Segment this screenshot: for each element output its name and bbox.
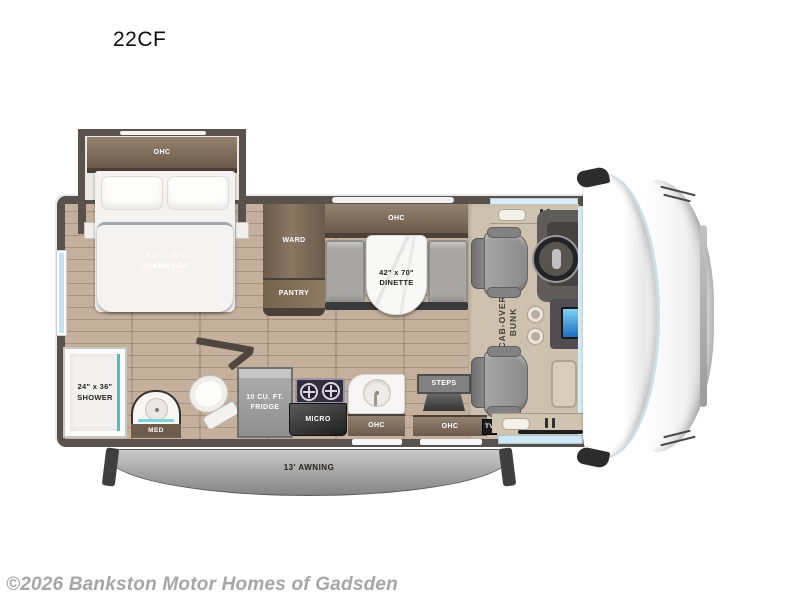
dinette-label: DINETTE <box>367 278 426 288</box>
microwave: MICRO <box>289 403 347 436</box>
dinette-bench-left <box>325 240 365 304</box>
microwave-label: MICRO <box>305 415 330 424</box>
steps-label: STEPS <box>432 379 457 388</box>
kitchen-ohc-label: OHC <box>368 421 385 430</box>
copyright-watermark: ©2026 Bankston Motor Homes of Gadsden <box>6 574 398 596</box>
driver-seat-armrest <box>487 227 521 238</box>
entry-door-handle <box>502 418 530 430</box>
bedroom-ohc-label: OHC <box>154 148 171 157</box>
kitchen-sink <box>363 379 391 407</box>
bath-sink <box>145 398 168 421</box>
wardrobe-label: WARD <box>283 236 306 245</box>
shower-glass-accent <box>117 354 120 431</box>
entry-door-vent <box>545 418 548 428</box>
pantry-toe-kick <box>263 308 325 316</box>
shower: 24" x 36" SHOWER <box>63 347 127 438</box>
fridge-size-label: 10 CU. FT. <box>246 393 283 402</box>
entry-door-trim <box>518 430 583 434</box>
cooktop <box>295 378 345 404</box>
cup-holder <box>528 307 543 322</box>
bedroom-overhead-cabinet: OHC <box>87 137 237 173</box>
driver-seat <box>471 232 528 293</box>
med-label: MED <box>148 427 164 435</box>
pantry-cabinet: PANTRY <box>263 280 325 308</box>
burner <box>300 383 318 401</box>
refrigerator: 10 CU. FT. FRIDGE <box>237 367 293 438</box>
entry-overhead-cabinet: OHC <box>413 415 487 436</box>
passenger-seat-cushion <box>484 351 528 414</box>
driver-door-handle <box>498 209 526 221</box>
awning-label: 13' AWNING <box>284 463 335 474</box>
cup-holder <box>528 329 543 344</box>
cab-over-label-line1: CAB-OVER <box>497 295 508 348</box>
entry-steps: STEPS <box>417 374 471 394</box>
queen-bed-size-label: 60" x 70" <box>97 251 233 261</box>
slideout-window <box>120 131 206 135</box>
dinette-ohc-label: OHC <box>388 214 405 223</box>
kitchen-faucet <box>374 393 377 406</box>
front-bumper-trim <box>700 225 707 407</box>
pantry-label: PANTRY <box>279 289 309 298</box>
bath-faucet <box>138 419 174 422</box>
dinette-window <box>332 197 454 203</box>
kitchen-overhead-cabinet: OHC <box>348 414 405 436</box>
nightstand-right <box>235 222 249 239</box>
step-well <box>423 394 465 411</box>
entry-window <box>420 439 482 445</box>
glove-box-door <box>551 360 577 408</box>
kitchen-window <box>352 439 402 445</box>
entry-door-vent <box>552 418 555 428</box>
model-title: 22CF <box>113 28 166 52</box>
dinette-overhead-cabinet: OHC <box>325 204 468 238</box>
dinette-bench-right <box>428 240 468 304</box>
driver-seat-armrest <box>487 287 521 298</box>
steering-wheel <box>534 237 578 281</box>
queen-bed: 60" x 70" QUEEN BED <box>95 171 235 312</box>
shower-size-label: 24" x 36" <box>78 382 113 392</box>
cab-over-label-line2: BUNK <box>508 308 519 337</box>
fridge-label: FRIDGE <box>251 403 280 412</box>
dinette-table: 42" x 70" DINETTE <box>366 235 427 315</box>
pillow-left <box>101 176 163 210</box>
shower-label: SHOWER <box>77 393 113 403</box>
burner <box>322 382 340 400</box>
wardrobe-cabinet: WARD <box>263 204 325 280</box>
passenger-seat-armrest <box>487 346 521 357</box>
passenger-seat <box>471 351 528 412</box>
entry-ohc-label: OHC <box>442 422 459 431</box>
driver-seat-cushion <box>484 232 528 295</box>
rear-window <box>57 251 66 335</box>
entry-door-window <box>498 435 583 444</box>
bed-duvet: 60" x 70" QUEEN BED <box>97 222 233 312</box>
dinette-size-label: 42" x 70" <box>367 268 426 278</box>
queen-bed-label: QUEEN BED <box>97 261 233 271</box>
medicine-cabinet: MED <box>131 424 181 438</box>
pillow-right <box>167 176 229 210</box>
floorplan-page: 22CF OHC 60" x 70" QUEEN BED WARD PANTRY… <box>0 0 800 600</box>
awning: 13' AWNING <box>107 449 511 496</box>
driver-door-window <box>490 198 578 205</box>
